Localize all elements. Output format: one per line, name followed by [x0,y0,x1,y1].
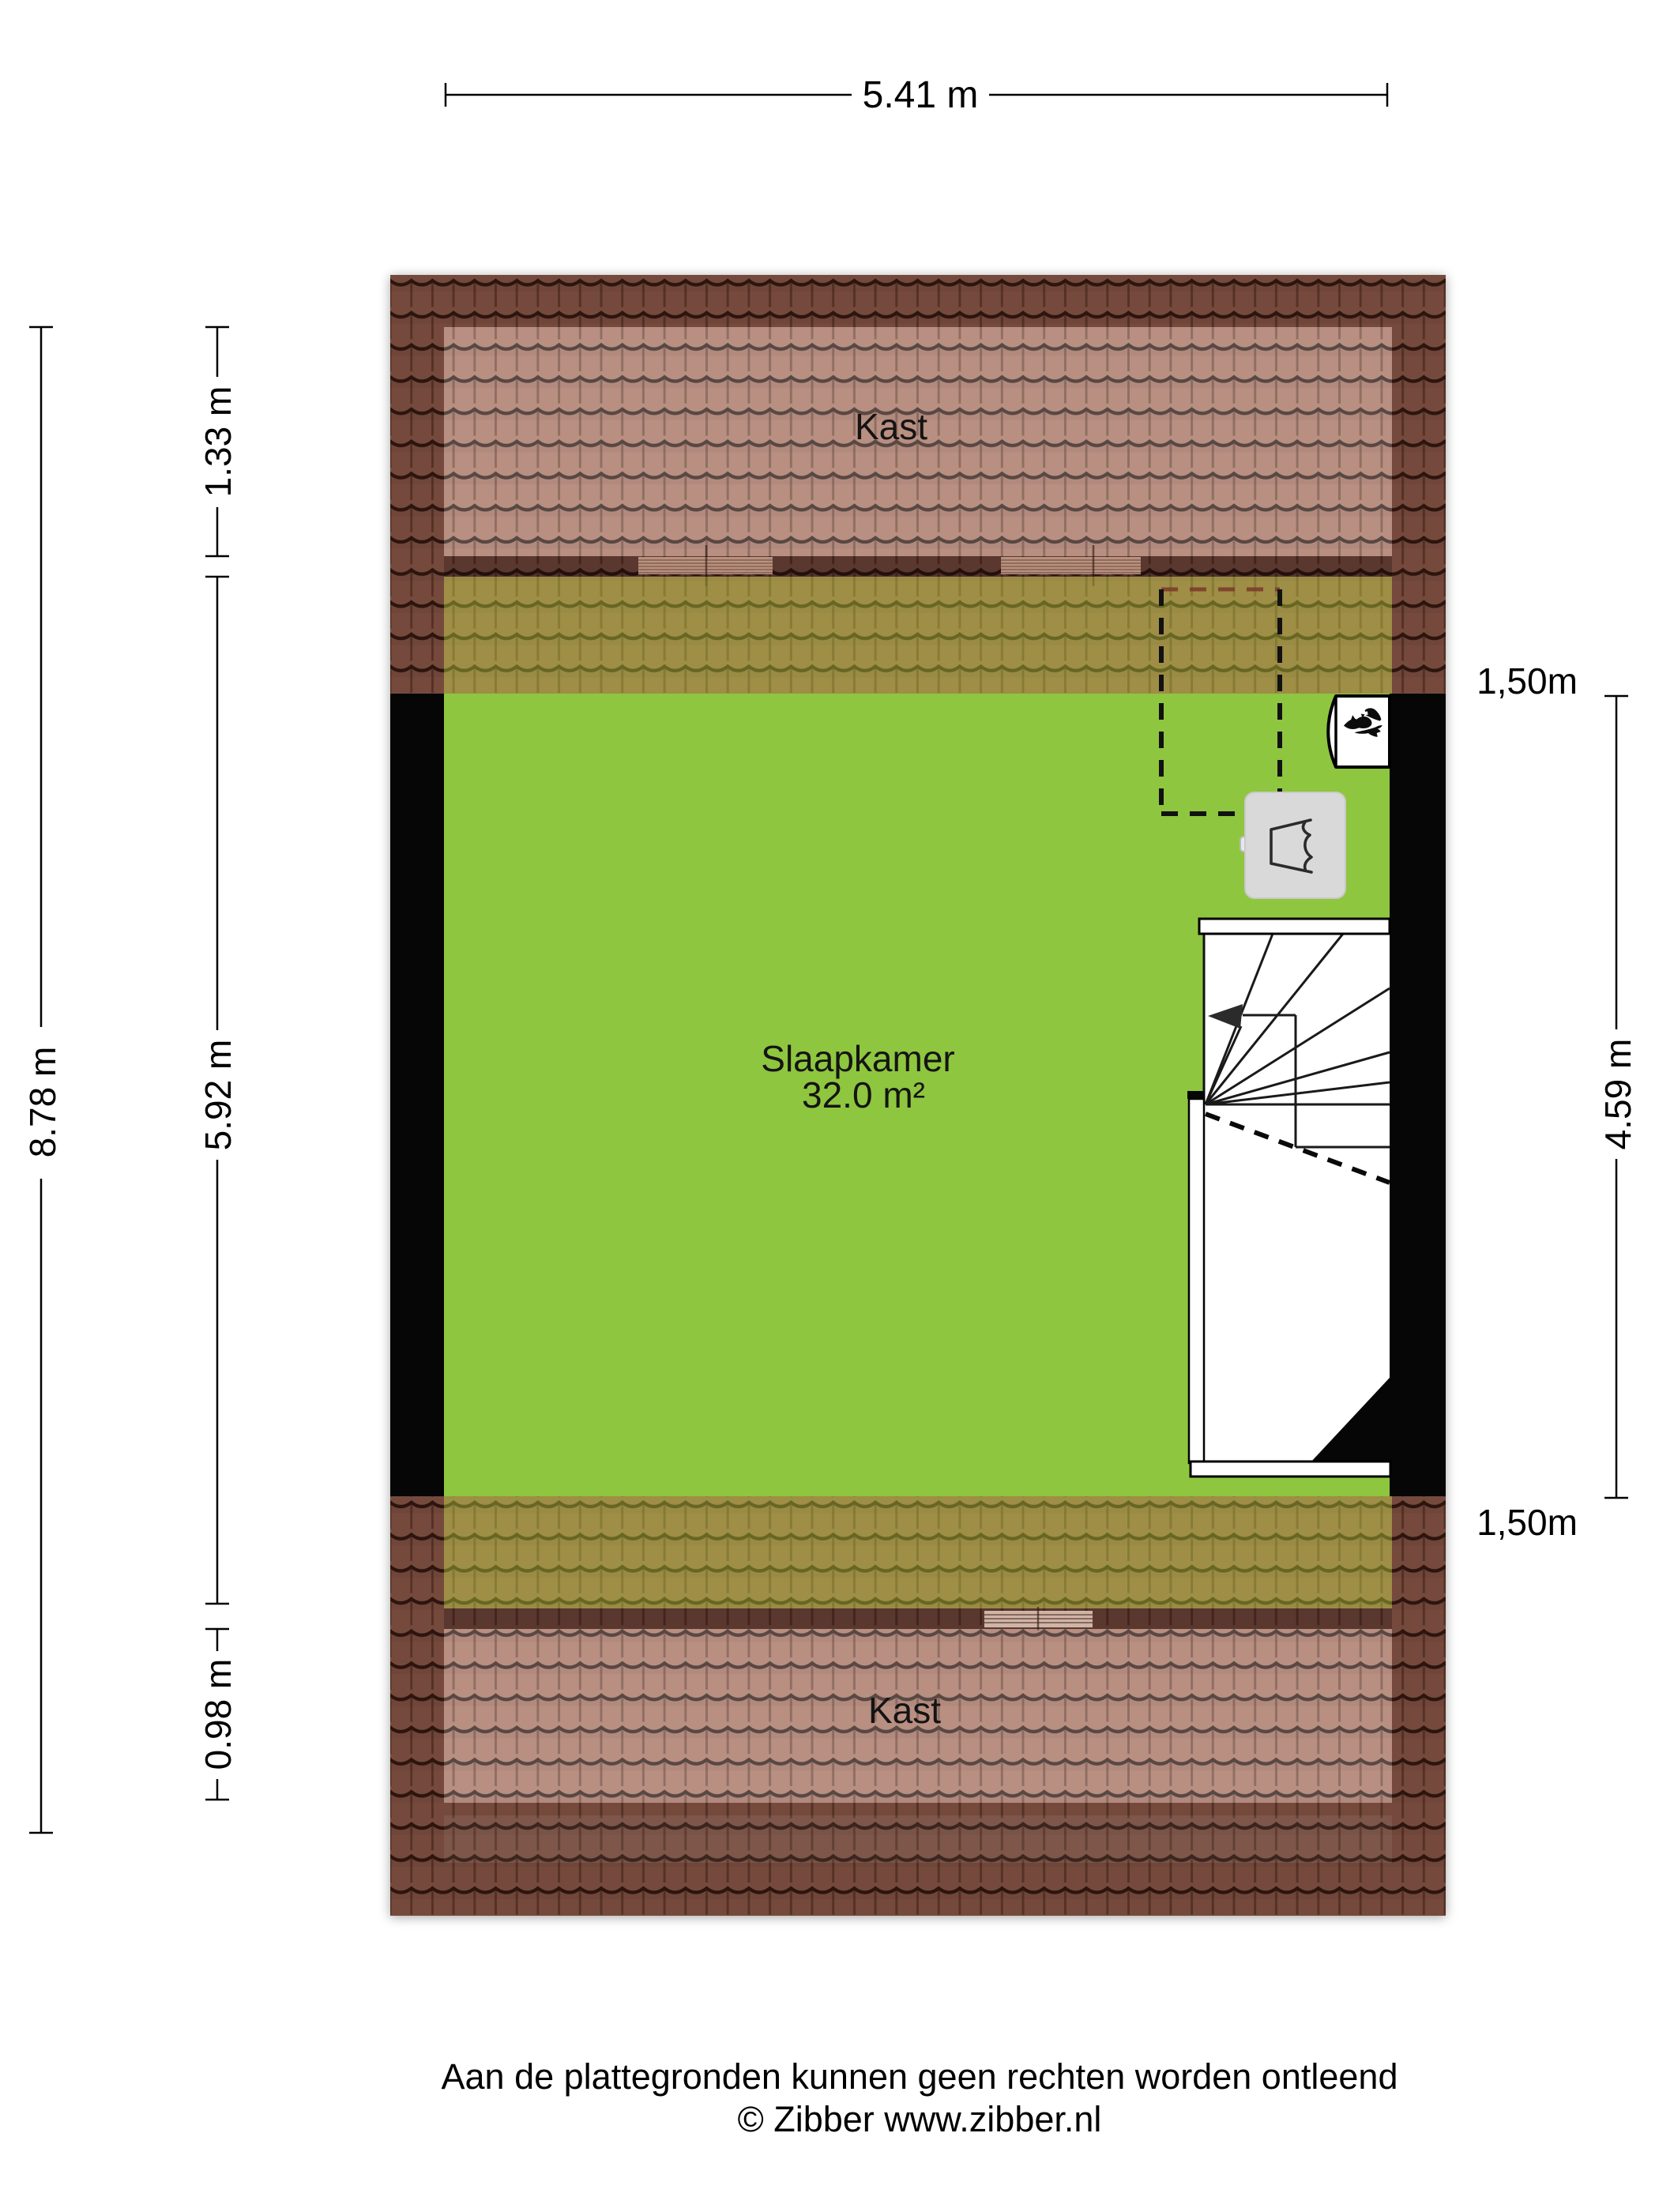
svg-text:Kast: Kast [868,1690,941,1731]
svg-text:0.98 m: 0.98 m [197,1659,239,1770]
svg-text:5.92 m: 5.92 m [197,1040,239,1151]
svg-text:5.41 m: 5.41 m [863,74,979,116]
svg-text:1.33 m: 1.33 m [197,386,239,498]
svg-text:4.59 m: 4.59 m [1597,1039,1638,1150]
svg-text:Kast: Kast [855,406,927,447]
svg-text:© Zibber www.zibber.nl: © Zibber www.zibber.nl [738,2099,1102,2139]
svg-text:1,50m: 1,50m [1477,1502,1578,1543]
svg-text:Aan de plattegronden kunnen ge: Aan de plattegronden kunnen geen rechten… [442,2056,1398,2097]
svg-text:1,50m: 1,50m [1477,660,1578,702]
svg-text:Slaapkamer: Slaapkamer [761,1038,954,1079]
svg-text:8.78 m: 8.78 m [22,1047,63,1158]
svg-text:32.0 m²: 32.0 m² [802,1074,925,1115]
